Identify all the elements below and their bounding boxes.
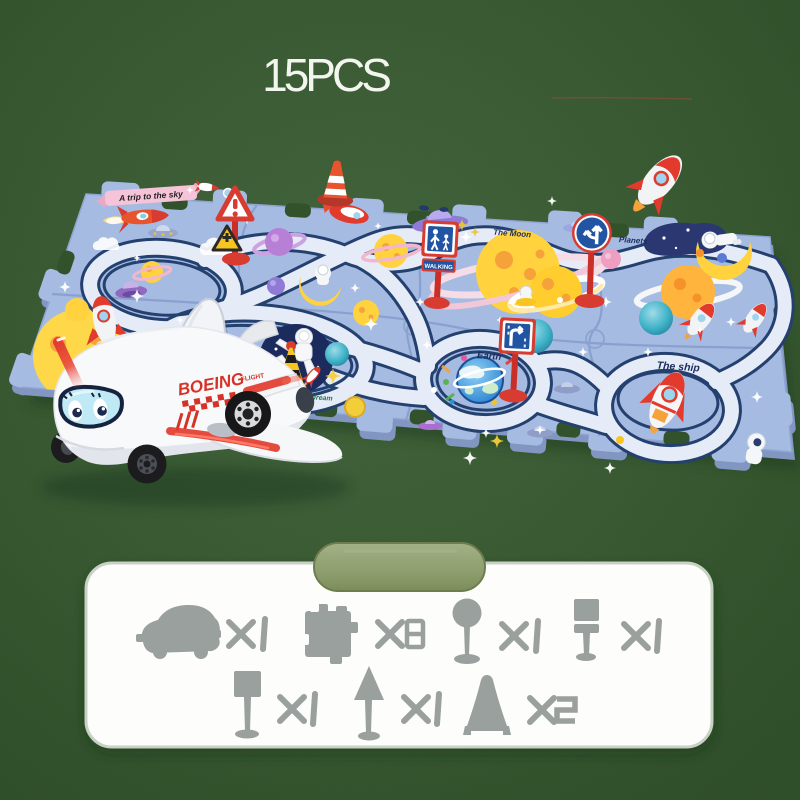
svg-text:Earth: Earth bbox=[477, 350, 502, 363]
svg-text:15PCS: 15PCS bbox=[262, 49, 390, 101]
svg-text:dream: dream bbox=[311, 394, 332, 402]
